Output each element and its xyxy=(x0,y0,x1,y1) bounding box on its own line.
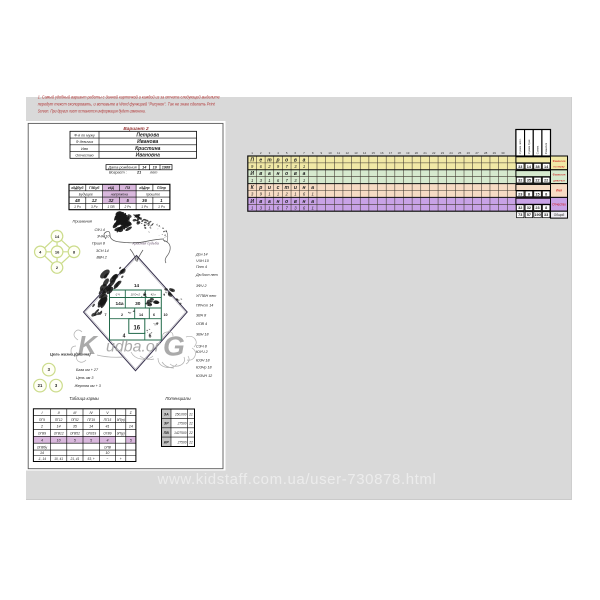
svg-text:32: 32 xyxy=(109,198,114,203)
svg-text:Сумма букв: Сумма букв xyxy=(527,139,531,154)
svg-text:10: 10 xyxy=(57,439,61,443)
svg-text:Отчество: Отчество xyxy=(75,154,93,158)
svg-text:Ивановна: Ивановна xyxy=(136,153,160,159)
svg-text:21: 21 xyxy=(136,171,141,175)
svg-text:21: 21 xyxy=(38,383,43,388)
svg-text:27500: 27500 xyxy=(177,422,187,426)
svg-text:База им + 27: База им + 27 xyxy=(76,368,99,372)
svg-text:udba.or: udba.or xyxy=(106,339,161,356)
svg-text:СЭЧ 8: СЭЧ 8 xyxy=(196,344,208,348)
svg-text:27: 27 xyxy=(475,151,479,155)
svg-text:22: 22 xyxy=(544,179,548,183)
svg-text:35: 35 xyxy=(527,179,531,183)
svg-text:П: П xyxy=(250,157,254,163)
svg-text:-1, 14: -1, 14 xyxy=(38,457,46,461)
svg-text:8: 8 xyxy=(528,192,530,196)
svg-text:в: в xyxy=(294,199,297,205)
svg-text:II: II xyxy=(58,411,60,415)
svg-text:+: + xyxy=(120,457,122,461)
svg-text:С9Ч 4: С9Ч 4 xyxy=(95,228,105,232)
svg-text:22: 22 xyxy=(188,422,193,426)
svg-text:10 Оч-2: 10 Оч-2 xyxy=(131,292,141,296)
svg-text:32: 32 xyxy=(518,179,522,183)
svg-text:17: 17 xyxy=(389,151,393,155)
svg-text:9П(у): 9П(у) xyxy=(117,432,125,436)
svg-text:по мужу: по мужу xyxy=(553,165,565,169)
svg-text:Screen. При других лист остане: Screen. При других лист останется информ… xyxy=(38,109,146,114)
svg-text:14: 14 xyxy=(134,283,140,288)
svg-text:G: G xyxy=(163,331,185,362)
svg-text:в: в xyxy=(294,157,297,163)
svg-text:-2 Ч: -2 Ч xyxy=(115,292,120,296)
svg-text:Дсн 14: Дсн 14 xyxy=(195,253,208,257)
svg-text:1 Рч: 1 Рч xyxy=(141,205,148,209)
svg-text:IV: IV xyxy=(89,411,93,415)
svg-text:Фамилия: Фамилия xyxy=(553,173,566,177)
svg-text:Имя: Имя xyxy=(556,189,562,193)
svg-text:ИР: ИР xyxy=(164,440,170,444)
svg-text:р: р xyxy=(258,185,262,191)
svg-text:1: 1 xyxy=(294,192,296,197)
svg-text:а: а xyxy=(268,199,271,205)
svg-text:УГПВН нет: УГПВН нет xyxy=(196,294,216,298)
svg-text:ЗВН 18: ЗВН 18 xyxy=(196,332,209,336)
svg-text:а: а xyxy=(311,185,314,191)
svg-text:ОГВ9: ОГВ9 xyxy=(103,432,111,436)
svg-text:ОГВ52: ОГВ52 xyxy=(70,432,80,436)
svg-text:ЮЗЧр 18: ЮЗЧр 18 xyxy=(196,366,213,370)
svg-text:н: н xyxy=(277,199,280,205)
svg-text:13: 13 xyxy=(354,151,358,155)
svg-text:Цель жизни (длинна): Цель жизни (длинна) xyxy=(50,352,91,357)
svg-text:ПВ: ПВ xyxy=(164,431,170,435)
svg-text:2: 2 xyxy=(40,425,43,429)
svg-text:20: 20 xyxy=(415,151,419,155)
svg-text:30: 30 xyxy=(135,301,141,307)
svg-text:а: а xyxy=(303,171,306,177)
svg-text:14: 14 xyxy=(129,425,133,429)
svg-text:ОГВ9: ОГВ9 xyxy=(38,432,46,436)
svg-text:Кристина: Кристина xyxy=(135,146,160,152)
svg-text:21: 21 xyxy=(423,151,427,155)
svg-text:Дата рождения: Дата рождения xyxy=(107,165,136,169)
svg-text:Дв.босн нет: Дв.босн нет xyxy=(195,273,218,277)
svg-text:Сумма: Сумма xyxy=(536,145,540,154)
svg-text:10: 10 xyxy=(163,313,167,317)
svg-text:16: 16 xyxy=(55,249,60,254)
svg-text:11: 11 xyxy=(337,151,340,155)
svg-text:ПГ12: ПГ12 xyxy=(55,418,63,422)
svg-text:14: 14 xyxy=(40,451,44,455)
svg-text:22: 22 xyxy=(188,440,193,444)
svg-text:а: а xyxy=(268,171,271,177)
svg-text:ПЗ: ПЗ xyxy=(125,186,130,190)
svg-text:22: 22 xyxy=(188,431,193,435)
svg-text:прошлое: прошлое xyxy=(146,192,160,196)
svg-text:Ф девичья: Ф девичья xyxy=(76,140,93,144)
svg-text:1. Самый удобный вариант работ: 1. Самый удобный вариант работы с данной… xyxy=(38,94,220,100)
svg-text:14: 14 xyxy=(55,234,60,239)
svg-text:1: 1 xyxy=(268,206,270,211)
svg-text:к5Дпр: к5Дпр xyxy=(139,186,149,190)
svg-text:лет: лет xyxy=(149,171,157,175)
svg-text:1: 1 xyxy=(303,178,305,183)
svg-text:14а: 14а xyxy=(115,301,123,307)
svg-text:Петрова: Петрова xyxy=(136,132,159,138)
svg-text:И: И xyxy=(250,199,254,205)
svg-text:Г5Буб: Г5Буб xyxy=(89,186,100,190)
svg-text:14: 14 xyxy=(57,425,61,429)
svg-text:в: в xyxy=(259,199,262,205)
svg-text:27500: 27500 xyxy=(177,440,187,444)
svg-text:2: 2 xyxy=(121,313,123,317)
svg-text:9П(н): 9П(н) xyxy=(117,418,125,422)
svg-text:ОПВбу: ОПВбу xyxy=(37,445,48,449)
svg-text:22: 22 xyxy=(535,179,539,183)
svg-text:1: 1 xyxy=(303,164,305,169)
svg-text:10, 41: 10, 41 xyxy=(54,457,63,461)
svg-text:12: 12 xyxy=(92,198,97,203)
svg-text:36: 36 xyxy=(142,198,147,203)
svg-text:ЗА: ЗА xyxy=(164,412,169,416)
svg-text:и: и xyxy=(294,185,297,191)
svg-text:15: 15 xyxy=(535,192,539,196)
svg-text:1427500: 1427500 xyxy=(174,431,187,435)
svg-text:73: 73 xyxy=(518,213,522,217)
svg-text:5: 5 xyxy=(74,439,76,443)
svg-text:8: 8 xyxy=(545,192,547,196)
svg-text:ЗВЧ 8: ЗВЧ 8 xyxy=(196,314,207,318)
svg-text:14: 14 xyxy=(89,425,93,429)
svg-text:ППчст 14: ППчст 14 xyxy=(196,304,213,308)
svg-text:26: 26 xyxy=(467,151,471,155)
svg-text:девичья: девичья xyxy=(553,178,565,182)
svg-text:21, 41: 21, 41 xyxy=(69,457,79,461)
svg-text:ПГ15: ПГ15 xyxy=(104,418,112,422)
svg-text:4: 4 xyxy=(41,439,43,443)
svg-text:ЗСН 14: ЗСН 14 xyxy=(96,249,109,253)
svg-text:т: т xyxy=(284,185,289,191)
svg-text:24: 24 xyxy=(449,151,453,155)
svg-text:Жертва им + 3: Жертва им + 3 xyxy=(74,384,102,388)
svg-text:35: 35 xyxy=(73,425,77,429)
svg-text:42-г: 42-г xyxy=(151,292,157,296)
svg-text:Иванова: Иванова xyxy=(137,139,158,145)
svg-text:в: в xyxy=(294,171,297,177)
svg-text:III: III xyxy=(73,411,76,415)
svg-text:33: 33 xyxy=(518,165,522,169)
svg-text:Отчество: Отчество xyxy=(552,203,566,207)
svg-text:I: I xyxy=(41,411,42,415)
svg-text:ЮУЧ 2: ЮУЧ 2 xyxy=(196,350,208,354)
svg-text:ЗФЧ 2: ЗФЧ 2 xyxy=(196,284,207,288)
svg-text:1: 1 xyxy=(251,178,253,183)
svg-text:к5Дбуб: к5Дбуб xyxy=(71,186,84,190)
svg-text:Пршл 8: Пршл 8 xyxy=(92,242,106,246)
svg-text:−: − xyxy=(107,457,109,461)
svg-text:н: н xyxy=(303,185,306,191)
svg-text:8: 8 xyxy=(545,206,547,210)
svg-text:н: н xyxy=(277,171,280,177)
svg-text:Сумма числ.: Сумма числ. xyxy=(518,138,522,154)
svg-text:16: 16 xyxy=(133,326,140,332)
svg-text:ВВЧ 2: ВВЧ 2 xyxy=(97,256,107,260)
svg-text:Цель им 3: Цель им 3 xyxy=(76,376,94,380)
svg-text:е: е xyxy=(259,157,262,163)
svg-text:Таблица кармы: Таблица кармы xyxy=(69,396,99,401)
svg-text:1988: 1988 xyxy=(162,165,171,169)
svg-text:н: н xyxy=(303,199,306,205)
svg-text:1 ПВ: 1 ПВ xyxy=(107,205,115,209)
svg-text:38: 38 xyxy=(535,165,539,169)
svg-text:Ф-я по мужу: Ф-я по мужу xyxy=(74,133,95,137)
svg-text:с: с xyxy=(277,185,280,191)
svg-text:Плт 4: Плт 4 xyxy=(196,265,207,269)
svg-text:1: 1 xyxy=(251,206,253,211)
svg-text:Будущее: Будущее xyxy=(79,192,93,196)
svg-text:напряжена: напряжена xyxy=(111,192,128,196)
svg-text:190: 190 xyxy=(534,213,540,217)
svg-text:10: 10 xyxy=(105,451,109,455)
svg-text:2 Рч: 2 Рч xyxy=(123,205,131,209)
svg-text:57: 57 xyxy=(527,213,531,217)
svg-text:ПГ52: ПГ52 xyxy=(71,418,79,422)
svg-text:а: а xyxy=(311,199,314,205)
svg-text:передут текст скопировать, и в: передут текст скопировать, и вставьте в … xyxy=(38,101,216,107)
svg-text:ЮЗЧ 18: ЮЗЧ 18 xyxy=(196,359,210,363)
svg-text:1 Рч: 1 Рч xyxy=(158,205,165,209)
svg-text:Потенциалы: Потенциалы xyxy=(165,396,190,401)
svg-text:22: 22 xyxy=(432,151,436,155)
svg-text:48: 48 xyxy=(74,198,80,203)
svg-text:ОГВ19: ОГВ19 xyxy=(86,432,96,436)
svg-text:19: 19 xyxy=(406,151,410,155)
svg-text:Призвания: Призвания xyxy=(73,219,92,224)
svg-text:41: 41 xyxy=(105,425,109,429)
svg-text:250,000: 250,000 xyxy=(174,412,187,416)
svg-text:ОПВ: ОПВ xyxy=(104,445,112,449)
svg-text:53, +: 53, + xyxy=(88,457,95,461)
svg-text:1: 1 xyxy=(268,192,270,197)
svg-text:р: р xyxy=(276,157,280,163)
svg-text:30: 30 xyxy=(501,151,505,155)
svg-text:5: 5 xyxy=(90,439,92,443)
svg-text:Имя: Имя xyxy=(81,147,88,151)
svg-text:т: т xyxy=(267,157,272,163)
svg-text:4: 4 xyxy=(106,439,108,443)
svg-text:32: 32 xyxy=(527,206,531,210)
svg-text:10: 10 xyxy=(328,151,332,155)
svg-text:ПГ9: ПГ9 xyxy=(39,418,45,422)
svg-text:к6Д: к6Д xyxy=(108,186,115,190)
svg-text:И: И xyxy=(250,171,254,177)
svg-text:Красная судьба: Красная судьба xyxy=(133,242,159,246)
svg-text:ЗР: ЗР xyxy=(164,422,169,426)
svg-text:1: 1 xyxy=(268,178,270,183)
svg-text:в: в xyxy=(259,171,262,177)
svg-text:29: 29 xyxy=(493,151,497,155)
svg-text:23: 23 xyxy=(441,151,445,155)
svg-text:о: о xyxy=(285,157,288,163)
svg-text:и: и xyxy=(268,185,271,191)
svg-text:32: 32 xyxy=(518,206,522,210)
svg-text:3 Рч: 3 Рч xyxy=(91,205,98,209)
svg-text:21: 21 xyxy=(188,412,193,416)
svg-text:23: 23 xyxy=(518,192,522,196)
svg-text:о: о xyxy=(285,199,288,205)
svg-text:28: 28 xyxy=(484,151,488,155)
svg-text:18: 18 xyxy=(397,151,401,155)
svg-text:1: 1 xyxy=(311,206,313,211)
svg-text:ЮЗЧН 12: ЮЗЧН 12 xyxy=(196,374,212,378)
svg-text:6: 6 xyxy=(153,313,155,317)
svg-text:25: 25 xyxy=(458,151,462,155)
svg-text:1: 1 xyxy=(311,192,313,197)
svg-text:а: а xyxy=(303,157,306,163)
svg-text:Общий: Общий xyxy=(554,213,565,217)
svg-text:Вариант 2: Вариант 2 xyxy=(123,126,149,131)
svg-text:Фамилия: Фамилия xyxy=(553,159,566,163)
svg-text:ОПВ 4: ОПВ 4 xyxy=(196,322,207,326)
svg-text:о: о xyxy=(285,171,288,177)
svg-text:7: 7 xyxy=(104,313,106,317)
svg-text:16: 16 xyxy=(380,151,384,155)
svg-text:Фамилия: Фамилия xyxy=(544,142,548,154)
svg-text:ПЗпр: ПЗпр xyxy=(157,186,166,190)
svg-text:Возраст :: Возраст : xyxy=(109,171,127,175)
svg-text:www.kidstaff.com.ua/user-73087: www.kidstaff.com.ua/user-730878.html xyxy=(157,471,437,488)
svg-text:12: 12 xyxy=(346,151,350,155)
svg-text:ОГВ12: ОГВ12 xyxy=(54,432,64,436)
svg-text:15: 15 xyxy=(372,151,376,155)
svg-text:1 Рч: 1 Рч xyxy=(74,205,81,209)
svg-text:33: 33 xyxy=(544,213,548,217)
svg-text:ПГ19: ПГ19 xyxy=(87,418,95,422)
svg-text:ЧЧН 10: ЧЧН 10 xyxy=(196,259,210,263)
svg-text:1: 1 xyxy=(277,192,279,197)
svg-text:5: 5 xyxy=(130,439,132,443)
svg-text:23: 23 xyxy=(535,206,539,210)
svg-text:14: 14 xyxy=(363,151,367,155)
